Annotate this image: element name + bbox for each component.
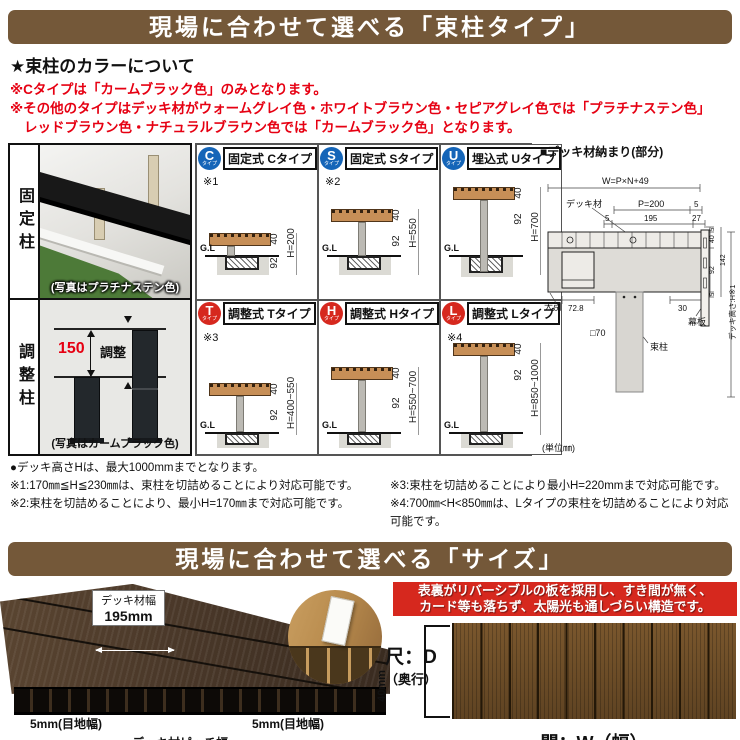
fascia-label: 幕板 — [688, 316, 706, 327]
type-cell-c: C タイプ 固定式 Cタイプ ※1 G.L 40 92 H=200 — [196, 144, 318, 300]
note-1: ※1:170㎜≦H≦230㎜は、束柱を切詰めることにより対応可能です。 — [10, 478, 376, 496]
dim-height: H=550 — [408, 205, 420, 261]
dim-5-top: 5 — [710, 227, 716, 231]
color-info: ★束柱のカラーについて ※Cタイプは「カームブラック色」のみとなります。 ※その… — [0, 50, 740, 137]
dim-height: H=400~550 — [286, 375, 298, 431]
type-c-icon: C タイプ — [198, 147, 221, 170]
type-header: T タイプ 調整式 Tタイプ — [197, 301, 317, 327]
depth-label: 尺：D （奥行） — [378, 642, 444, 688]
deck-board — [209, 383, 271, 396]
deck-width-arrow — [96, 650, 174, 651]
foundation-hatch — [469, 433, 503, 445]
color-note-1: ※Cタイプは「カームブラック色」のみとなります。 — [10, 80, 730, 99]
type-tag: タイプ — [202, 162, 217, 167]
foundation-hatch — [347, 256, 381, 270]
type-title: 固定式 Sタイプ — [345, 147, 438, 170]
dim-92: 92 — [709, 267, 716, 275]
post-size-label: □70 — [590, 328, 605, 338]
type-u-icon: U タイプ — [442, 147, 465, 170]
dim-92: 92 — [391, 383, 403, 423]
type-tag: タイプ — [446, 162, 461, 167]
post-type-panel: 固定柱 (写真はプラチナステン色) 調整柱 150 調整 — [0, 143, 740, 456]
note-3: ※3:束柱を切詰めることにより最小H=220mmまで対応可能です。 — [390, 478, 730, 496]
pitch-label: デッキ材ピッチ幅 — [100, 734, 260, 740]
type-header: C タイプ 固定式 Cタイプ — [197, 145, 317, 171]
post-label: 束柱 — [650, 341, 668, 352]
type-tag: タイプ — [324, 162, 339, 167]
dim-92: 92 — [269, 243, 281, 283]
deck-width-value: 195mm — [101, 608, 156, 624]
type-cell-s: S タイプ 固定式 Sタイプ ※2 G.L 40 92 H=550 — [318, 144, 440, 300]
note-4: ※4:700㎜<H<850㎜は、Lタイプの束柱を切詰めることにより対応可能です。 — [390, 496, 730, 532]
deck-section-detail: ■デッキ材納まり(部分) — [540, 143, 736, 459]
section-banner-post-types: 現場に合わせて選べる「束柱タイプ」 — [8, 10, 732, 44]
arrow-up-icon — [124, 382, 132, 389]
dim-92: 92 — [269, 395, 281, 435]
dim-92: 92 — [513, 355, 525, 395]
dim-27: 27 — [692, 214, 701, 223]
adjustable-post-row: 調整柱 150 調整 (写真はカームブラック色) — [10, 300, 190, 455]
support-post — [480, 200, 488, 272]
fixed-post-label: 固定柱 — [10, 145, 40, 298]
size-section: デッキ材幅 195mm 5mm(目地幅) 5mm(目地幅) デッキ材ピッチ幅 2… — [0, 582, 740, 740]
dim-40: 40 — [709, 236, 716, 244]
type-diagram: G.L 40 92 H=550 — [319, 171, 439, 299]
joint-closeup-photo — [288, 590, 382, 684]
type-diagram: G.L 40 92 H=550~700 — [319, 327, 439, 455]
dim-92: 92 — [391, 221, 403, 261]
beam-label: 大引 — [544, 301, 562, 312]
telescope-seam — [132, 388, 158, 390]
dim-142: 142 — [720, 255, 727, 267]
height-notes: ●デッキ高さHは、最大1000mmまでとなります。 ※1:170㎜≦H≦230㎜… — [0, 456, 740, 531]
ground-level-label: G.L — [200, 243, 215, 253]
range-arrow-down-icon — [87, 370, 95, 377]
gap-width-right: 5mm(目地幅) — [252, 715, 324, 732]
post-photo-box: 固定柱 (写真はプラチナステン色) 調整柱 150 調整 — [8, 143, 192, 456]
foundation-hatch — [225, 433, 259, 445]
notes-column-2: ※3:束柱を切詰めることにより最小H=220mmまで対応可能です。 ※4:700… — [390, 460, 730, 531]
deck-board — [331, 209, 393, 222]
arrow-down-icon — [124, 316, 132, 323]
deck-board — [209, 233, 271, 246]
note-2: ※2:束柱を切詰めることにより、最小H=170㎜まで対応可能です。 — [10, 496, 376, 514]
type-title: 調整式 Hタイプ — [345, 302, 439, 325]
deck-width-label: デッキ材幅 — [101, 592, 156, 608]
type-diagram: G.L 40 92 H=400~550 — [197, 327, 317, 455]
note-main: ●デッキ高さHは、最大1000mmまでとなります。 — [10, 460, 376, 478]
support-post — [227, 246, 235, 256]
deck-height-label: デッキ高さ:H※1 — [727, 285, 736, 340]
adjust-range-word: 調整 — [100, 342, 126, 361]
type-tag: タイプ — [446, 317, 461, 322]
detail-title: ■デッキ材納まり(部分) — [540, 143, 736, 160]
deck-board — [331, 367, 393, 380]
type-tag: タイプ — [324, 317, 339, 322]
card-in-joint — [321, 596, 354, 646]
dim-92: 92 — [513, 199, 525, 239]
deck-section-drawing: W=P×N+49 デッキ材 P=200 5 5 195 27 5 40 92 5… — [540, 162, 736, 454]
post-type-grid: C タイプ 固定式 Cタイプ ※1 G.L 40 92 H=200 — [195, 143, 532, 456]
adjustable-post-diagram: 150 調整 (写真はカームブラック色) — [40, 300, 190, 455]
type-t-icon: T タイプ — [198, 302, 221, 325]
ground-level-label: G.L — [322, 243, 337, 253]
color-info-heading: ★束柱のカラーについて — [10, 52, 730, 77]
width-dimension-label: 間：W（幅） — [533, 729, 656, 740]
deck-material-label: デッキ材 — [566, 198, 602, 209]
adjustable-post-caption: (写真はカームブラック色) — [40, 435, 190, 451]
type-title: 固定式 Cタイプ — [223, 147, 317, 170]
type-l-icon: L タイプ — [442, 302, 465, 325]
dim-72-8: 72.8 — [568, 304, 584, 313]
dim-30: 30 — [678, 304, 687, 313]
short-post — [74, 377, 100, 439]
dim-height: H=550~700 — [408, 369, 420, 425]
unit-label: (単位㎜) — [542, 442, 575, 453]
feature-banner: 表裏がリバーシブルの板を採用し、すき間が無く、 カード等も落ちず、太陽光も通しづ… — [393, 582, 737, 616]
color-note-2: ※その他のタイプはデッキ材がウォームグレイ色・ホワイトブラウン色・セピアグレイ色… — [10, 99, 730, 118]
deck-board — [453, 187, 515, 200]
dim-5-bottom: 5 — [710, 292, 716, 296]
type-cell-h: H タイプ 調整式 Hタイプ G.L 40 92 H=550~700 — [318, 300, 440, 456]
depth-label-main: 尺：D — [378, 642, 444, 669]
deck-edge-section — [14, 687, 386, 715]
dim-5-right: 5 — [694, 200, 699, 209]
width-dimension-row: 間：W（幅） — [452, 729, 736, 740]
deck-plan-view — [452, 623, 736, 719]
fixed-post-caption: (写真はプラチナステン色) — [40, 279, 190, 295]
type-diagram: G.L 40 92 H=200 — [197, 171, 317, 299]
fixed-post-photo: (写真はプラチナステン色) — [40, 145, 190, 298]
ground-level-label: G.L — [200, 420, 215, 430]
color-note-3: レッドブラウン色・ナチュラルブラウン色では「カームブラック色」となります。 — [10, 118, 730, 137]
fixed-post-row: 固定柱 (写真はプラチナステン色) — [10, 145, 190, 300]
ground-level-label: G.L — [444, 243, 459, 253]
tall-post — [132, 330, 158, 439]
notes-column-1: ●デッキ高さHは、最大1000mmまでとなります。 ※1:170㎜≦H≦230㎜… — [10, 460, 376, 531]
support-post — [480, 356, 488, 432]
adjustable-post-label: 調整柱 — [10, 300, 40, 455]
support-post — [236, 396, 244, 432]
ground-level-label: G.L — [444, 420, 459, 430]
type-s-icon: S タイプ — [320, 147, 343, 170]
type-cell-t: T タイプ 調整式 Tタイプ ※3 G.L 40 92 H=400~550 — [196, 300, 318, 456]
dim-height: H=200 — [286, 215, 298, 271]
board-cross-section — [288, 646, 382, 684]
type-h-icon: H タイプ — [320, 302, 343, 325]
foundation-hatch — [225, 256, 259, 270]
foundation-hatch — [347, 433, 381, 445]
section-banner-sizes: 現場に合わせて選べる「サイズ」 — [8, 542, 732, 576]
ground-level-label: G.L — [322, 420, 337, 430]
feature-line-2: カード等も落ちず、太陽光も通しづらい構造です。 — [393, 599, 737, 615]
type-tag: タイプ — [202, 317, 217, 322]
deck-width-label-box: デッキ材幅 195mm — [92, 590, 165, 626]
type-header: S タイプ 固定式 Sタイプ — [319, 145, 439, 171]
feature-line-1: 表裏がリバーシブルの板を採用し、すき間が無く、 — [393, 583, 737, 599]
gap-width-left: 5mm(目地幅) — [30, 715, 102, 732]
deck-board — [453, 343, 515, 356]
support-post — [358, 222, 366, 256]
range-arrow-up-icon — [87, 330, 95, 337]
dim-5: 5 — [605, 214, 610, 223]
support-post — [358, 380, 366, 432]
adjust-range-value: 150 — [58, 340, 85, 358]
depth-label-sub: （奥行） — [378, 669, 444, 688]
type-title: 調整式 Tタイプ — [223, 302, 316, 325]
dim-w-formula: W=P×N+49 — [602, 176, 649, 186]
type-header: H タイプ 調整式 Hタイプ — [319, 301, 439, 327]
dim-p200: P=200 — [638, 199, 664, 209]
dim-195: 195 — [644, 214, 658, 223]
